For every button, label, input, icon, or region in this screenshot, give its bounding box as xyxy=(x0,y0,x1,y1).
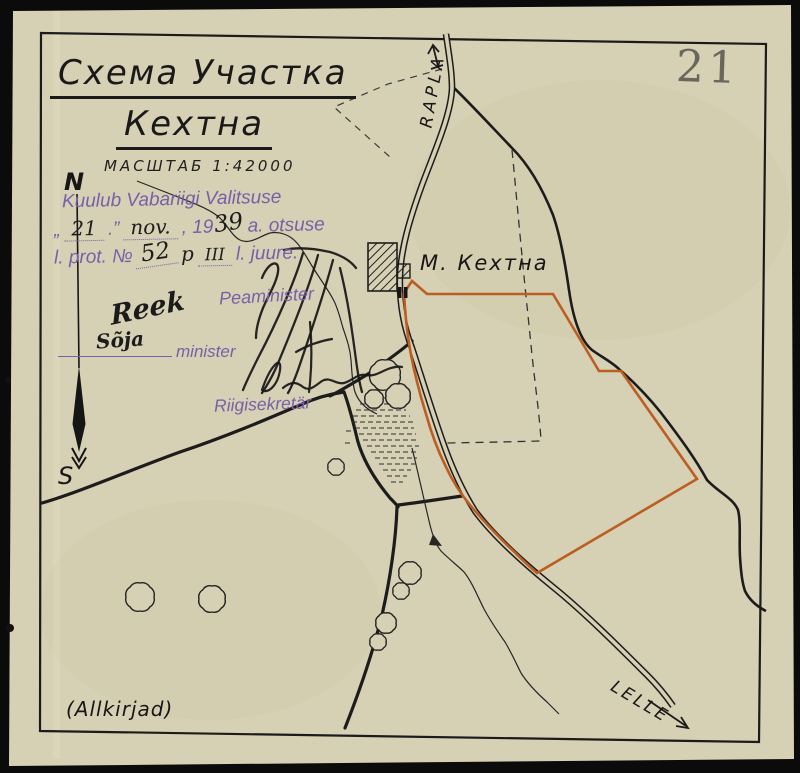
allkirjad-note: (Allkirjad) xyxy=(66,697,173,721)
stamp-line2-tail: a. otsuse xyxy=(247,214,325,238)
riigisekretar-label: Riigisekretär xyxy=(214,392,312,416)
tree-clump xyxy=(399,562,422,585)
manor-label: М. Кехтна xyxy=(420,251,549,275)
tree-clump xyxy=(393,583,409,599)
tree-clump xyxy=(199,586,226,613)
paper-stain xyxy=(410,80,790,340)
tree-clump xyxy=(386,384,411,409)
compass-north-label: N xyxy=(64,168,86,196)
stamp-year-printed: , 19 xyxy=(181,217,213,240)
minister-label: minister xyxy=(176,342,236,362)
stamp-line1: Kuulub Vabariigi Valitsuse xyxy=(62,187,282,214)
minister-handwritten-prefix: Sõja xyxy=(95,326,145,353)
scanned-map-document: 21 Схема Участка Кехтна МАСШТАБ 1:42000 … xyxy=(0,0,800,773)
stamp-line3-prefix: l. prot. № xyxy=(54,246,133,270)
title-line1: Схема Участка xyxy=(50,53,356,99)
scan-speck xyxy=(5,377,11,383)
stamp-year-handwritten: 39 xyxy=(213,208,246,238)
stamp-day-handwritten: 21 xyxy=(64,216,104,242)
scan-speck xyxy=(6,624,14,632)
stamp-line3: l. prot. №52pIII l. juure. xyxy=(54,238,299,270)
title-line2: Кехтна xyxy=(116,104,272,150)
stamp-protocol-handwritten: 52 xyxy=(132,236,179,269)
tree-clump xyxy=(328,459,344,475)
stamp-open-quote: „ xyxy=(54,220,61,242)
stamp-point-handwritten: III xyxy=(198,245,233,267)
compass-south-label: S xyxy=(58,462,75,490)
tree-clump xyxy=(370,634,386,650)
page-number: 21 xyxy=(675,41,741,94)
stamp-close-quote: .” xyxy=(108,218,120,240)
tree-clump xyxy=(365,390,383,408)
tree-clump xyxy=(126,583,155,612)
scale-label: МАСШТАБ 1:42000 xyxy=(104,157,296,175)
tree-clump xyxy=(376,613,396,633)
stamp-point-label: p xyxy=(181,242,194,266)
stamp-line3-tail: l. juure. xyxy=(236,242,299,265)
